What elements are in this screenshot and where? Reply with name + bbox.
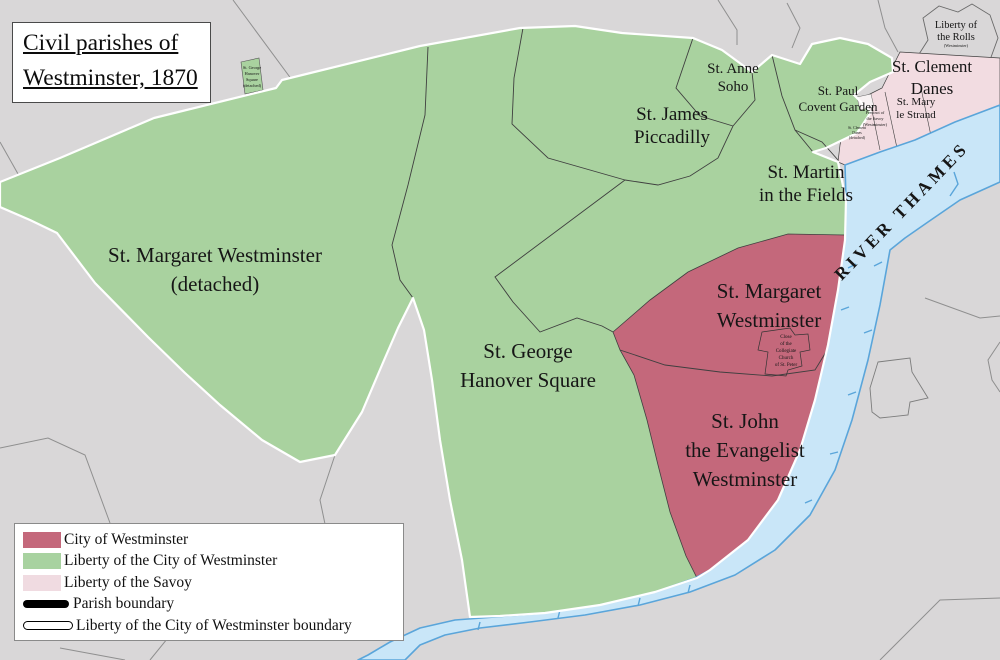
legend-label: Liberty of the City of Westminster <box>64 552 277 570</box>
label-close-collegiate: of St. Peter <box>775 363 798 368</box>
region-st-george-detached <box>241 58 263 94</box>
map-title-line2: Westminster, 1870 <box>23 61 198 96</box>
label-st-mary: St. Mary <box>897 96 936 108</box>
map-title: Civil parishes of Westminster, 1870 <box>12 22 211 103</box>
label-st-margaret: Westminster <box>717 308 821 332</box>
label-st-george: St. George <box>483 339 572 363</box>
legend-item-liberty-boundary: Liberty of the City of Westminster bound… <box>23 615 397 637</box>
parish-boundary-swatch <box>23 600 69 608</box>
label-st-paul: St. Paul <box>818 83 859 98</box>
label-st-margaret: St. Margaret <box>717 279 822 303</box>
legend-label: City of Westminster <box>64 531 188 549</box>
label-close-collegiate: Collegiate <box>776 349 797 354</box>
label-precinct-savoy: the Savoy <box>866 116 884 121</box>
label-st-george-detached: (detached) <box>243 83 262 88</box>
label-st-clement: St. Clement <box>892 57 973 76</box>
label-st-john: Westminster <box>693 467 797 491</box>
label-st-james: St. James <box>636 104 708 125</box>
label-st-mary: le Strand <box>896 109 936 121</box>
label-st-anne: Soho <box>718 79 749 95</box>
legend-item-parish-boundary: Parish boundary <box>23 594 397 616</box>
city-of-westminster-swatch <box>23 532 61 548</box>
legend-item-liberty: Liberty of the City of Westminster <box>23 551 397 573</box>
map-title-line1: Civil parishes of <box>23 26 198 61</box>
label-close-collegiate: Close <box>780 335 792 340</box>
label-st-martin: in the Fields <box>759 185 853 206</box>
label-st-anne: St. Anne <box>707 61 759 77</box>
label-liberty-rolls: (Westminster) <box>944 43 969 48</box>
legend-item-city: City of Westminster <box>23 529 397 551</box>
label-st-margaret-detached: St. Margaret Westminster <box>108 243 322 267</box>
legend-item-savoy: Liberty of the Savoy <box>23 572 397 594</box>
legend: City of Westminster Liberty of the City … <box>14 523 404 641</box>
label-st-john: the Evangelist <box>685 438 805 462</box>
label-st-martin: St. Martin <box>767 162 845 183</box>
label-close-collegiate: of the <box>780 342 792 347</box>
label-st-clement-detached: (detached) <box>849 136 866 140</box>
label-st-george-detached: Square <box>246 77 258 82</box>
label-st-clement-detached: St. Clement <box>848 126 867 130</box>
label-precinct-savoy: Precinct of <box>866 110 885 115</box>
label-st-george-detached: St. George <box>243 65 261 70</box>
savoy-swatch <box>23 575 61 591</box>
label-precinct-savoy: (Westminster) <box>863 122 888 127</box>
liberty-swatch <box>23 553 61 569</box>
label-st-john: St. John <box>711 409 779 433</box>
legend-label: Liberty of the City of Westminster bound… <box>76 617 352 635</box>
liberty-boundary-swatch <box>23 621 73 630</box>
label-liberty-rolls: the Rolls <box>937 32 975 43</box>
label-liberty-rolls: Liberty of <box>935 20 978 31</box>
label-close-collegiate: Church <box>779 356 794 361</box>
label-st-george-detached: Hanover <box>245 71 260 76</box>
label-st-george: Hanover Square <box>460 368 596 392</box>
label-st-clement-detached: Danes <box>852 131 862 135</box>
legend-label: Liberty of the Savoy <box>64 574 192 592</box>
label-st-margaret-detached: (detached) <box>171 272 260 296</box>
label-st-james: Piccadilly <box>634 127 710 148</box>
legend-label: Parish boundary <box>73 595 174 613</box>
